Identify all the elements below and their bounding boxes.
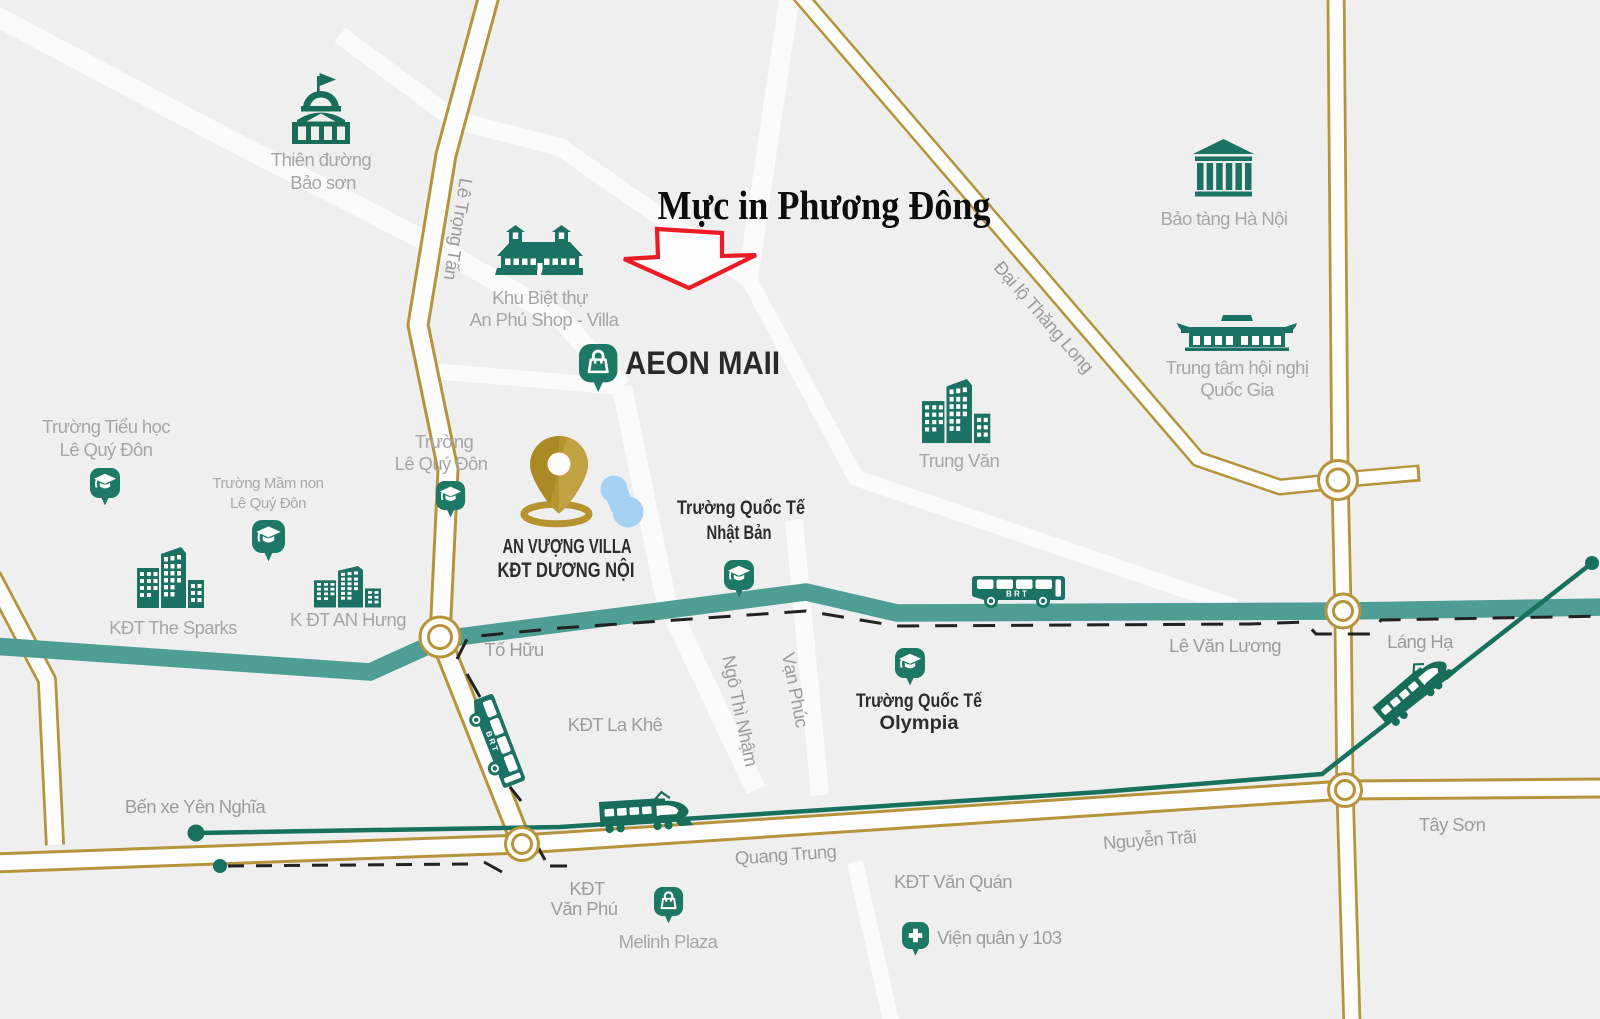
svg-text:Tố Hữu: Tố Hữu <box>484 639 543 660</box>
svg-text:K ĐT AN Hưng: K ĐT AN Hưng <box>290 609 406 630</box>
svg-text:Trung tâm hội nghị: Trung tâm hội nghị <box>1166 357 1309 378</box>
svg-text:Lê Quý Đôn: Lê Quý Đôn <box>395 453 488 474</box>
svg-text:KĐT DƯƠNG NỘI: KĐT DƯƠNG NỘI <box>498 558 635 582</box>
svg-text:Bến xe Yên Nghĩa: Bến xe Yên Nghĩa <box>125 796 267 817</box>
svg-text:Trường Mầm non: Trường Mầm non <box>212 475 323 492</box>
svg-text:Trường: Trường <box>415 431 474 452</box>
svg-text:Trường Quốc Tế: Trường Quốc Tế <box>856 691 982 712</box>
svg-text:Mực in Phương Đông: Mực in Phương Đông <box>658 182 991 228</box>
svg-text:An Phú Shop - Villa: An Phú Shop - Villa <box>470 309 620 330</box>
svg-text:Tây Sơn: Tây Sơn <box>1419 814 1486 835</box>
svg-text:Trường Quốc Tế: Trường Quốc Tế <box>677 498 805 519</box>
svg-text:Quốc Gia: Quốc Gia <box>1200 379 1275 400</box>
svg-text:Lê Quý Đôn: Lê Quý Đôn <box>230 495 306 512</box>
svg-text:AEON MAII: AEON MAII <box>625 345 780 381</box>
svg-text:Trung Văn: Trung Văn <box>919 450 1000 471</box>
svg-text:Láng Hạ: Láng Hạ <box>1387 631 1454 652</box>
svg-text:AN VƯỢNG VILLA: AN VƯỢNG VILLA <box>503 536 632 558</box>
svg-text:KĐT: KĐT <box>569 878 604 899</box>
svg-text:Thiên đường: Thiên đường <box>271 149 372 170</box>
svg-text:KĐT The Sparks: KĐT The Sparks <box>109 617 237 638</box>
svg-text:Văn Phú: Văn Phú <box>551 898 618 919</box>
svg-text:Bảo sơn: Bảo sơn <box>290 172 356 193</box>
svg-text:Bảo tàng Hà Nội: Bảo tàng Hà Nội <box>1161 208 1288 229</box>
svg-text:Lê Quý Đôn: Lê Quý Đôn <box>60 439 153 460</box>
svg-text:Trường Tiểu học: Trường Tiểu học <box>42 416 170 437</box>
svg-text:KĐT Văn Quán: KĐT Văn Quán <box>894 871 1012 892</box>
svg-text:Melinh Plaza: Melinh Plaza <box>619 931 719 952</box>
svg-text:Olympia: Olympia <box>880 713 959 734</box>
svg-text:KĐT La Khê: KĐT La Khê <box>568 714 663 735</box>
svg-text:Viện quân y 103: Viện quân y 103 <box>937 927 1062 948</box>
svg-text:Lê Văn Lương: Lê Văn Lương <box>1169 635 1281 656</box>
svg-text:Khu Biệt thự: Khu Biệt thự <box>492 287 588 308</box>
svg-text:Nhật Bản: Nhật Bản <box>707 523 772 544</box>
